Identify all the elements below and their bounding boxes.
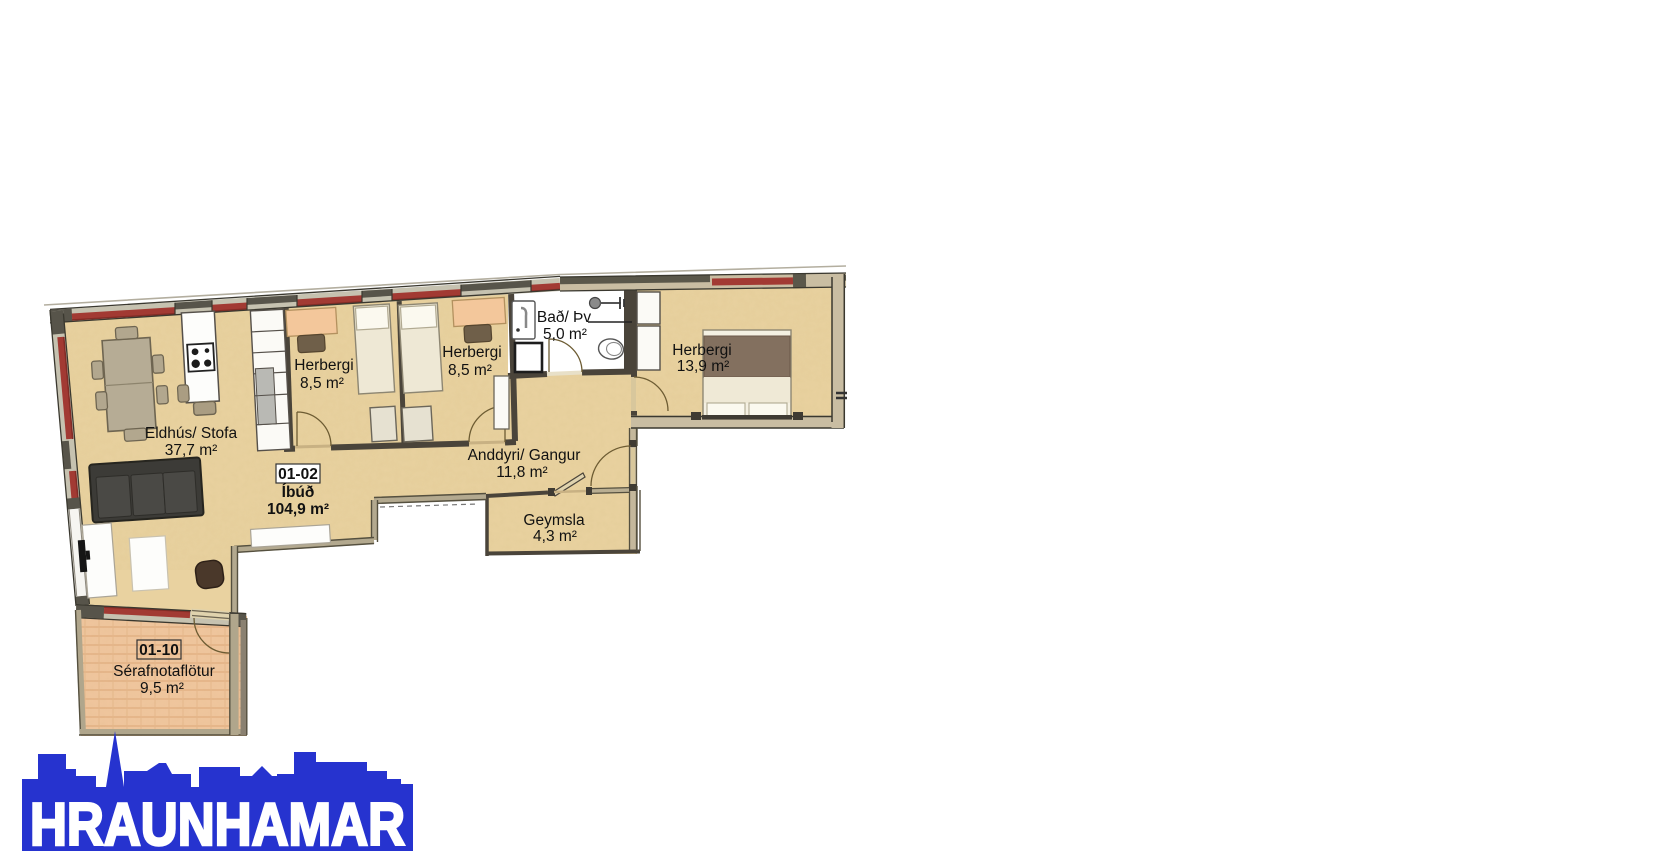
svg-text:5,0 m²: 5,0 m² [543,326,587,343]
svg-text:Herbergi: Herbergi [442,344,501,361]
svg-text:104,9 m²: 104,9 m² [267,501,329,518]
svg-text:37,7 m²: 37,7 m² [165,442,218,459]
svg-text:01-10: 01-10 [139,642,179,659]
svg-text:8,5 m²: 8,5 m² [300,375,344,392]
svg-text:Bað/ Þv: Bað/ Þv [537,309,592,326]
svg-text:Anddyri/ Gangur: Anddyri/ Gangur [468,447,581,464]
svg-text:4,3 m²: 4,3 m² [533,528,577,545]
svg-text:01-02: 01-02 [278,466,318,483]
svg-text:11,8 m²: 11,8 m² [496,464,547,481]
svg-text:13,9 m²: 13,9 m² [677,358,730,375]
svg-text:9,5 m²: 9,5 m² [140,680,184,697]
svg-text:8,5 m²: 8,5 m² [448,362,492,379]
svg-text:Geymsla: Geymsla [523,512,585,529]
svg-text:Eldhús/ Stofa: Eldhús/ Stofa [145,425,238,442]
svg-text:Herbergi: Herbergi [672,342,731,359]
svg-text:HRAUNHAMAR: HRAUNHAMAR [30,791,405,858]
svg-text:Íbúð: Íbúð [282,484,315,501]
svg-text:Herbergi: Herbergi [294,357,353,374]
svg-text:Sérafnotaflötur: Sérafnotaflötur [113,663,215,680]
